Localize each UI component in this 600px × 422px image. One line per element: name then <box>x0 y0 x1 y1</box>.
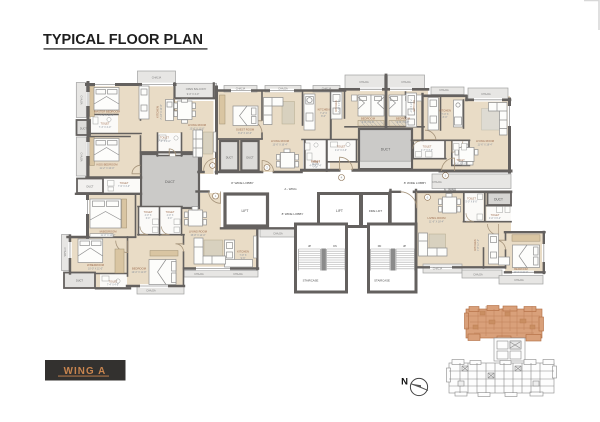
svg-text:11'-6" X 18'-4": 11'-6" X 18'-4" <box>478 144 493 147</box>
svg-text:DUCT: DUCT <box>87 186 94 189</box>
svg-text:CHAJJA: CHAJJA <box>233 273 243 276</box>
svg-text:OPEN BALCONY: OPEN BALCONY <box>186 87 207 91</box>
svg-text:WING A: WING A <box>64 366 107 377</box>
svg-text:CHAJJA: CHAJJA <box>359 81 369 84</box>
svg-text:CHAJJA: CHAJJA <box>80 95 83 104</box>
svg-text:TYPICAL FLOOR PLAN: TYPICAL FLOOR PLAN <box>43 31 203 48</box>
svg-text:LIVING ROOM: LIVING ROOM <box>189 230 208 234</box>
svg-text:11'-6" X 18'-4": 11'-6" X 18'-4" <box>429 221 444 224</box>
svg-text:8' WIDE LOBBY: 8' WIDE LOBBY <box>231 181 253 185</box>
svg-text:DUCT: DUCT <box>381 147 390 151</box>
svg-text:8' WIDE LOBBY: 8' WIDE LOBBY <box>404 181 426 185</box>
svg-text:UP: UP <box>308 245 312 248</box>
svg-text:4'-0" X: 4'-0" X <box>167 215 174 217</box>
svg-text:9'-6": 9'-6" <box>241 257 246 260</box>
svg-text:TOILET: TOILET <box>109 281 118 284</box>
svg-text:KITCHEN: KITCHEN <box>412 100 416 112</box>
svg-text:DN: DN <box>333 245 337 248</box>
svg-text:TOILET: TOILET <box>337 146 346 149</box>
svg-text:LIFT: LIFT <box>242 209 249 213</box>
svg-text:CHAJJA: CHAJJA <box>278 88 288 91</box>
svg-text:10'-0" X 10'-0": 10'-0" X 10'-0" <box>514 272 529 274</box>
svg-text:TOILET: TOILET <box>456 159 465 162</box>
svg-text:4'-0" X: 4'-0" X <box>145 215 152 217</box>
svg-text:7'-8" X 7'-0": 7'-8" X 7'-0" <box>478 239 480 251</box>
svg-text:BEDROOM: BEDROOM <box>514 267 527 271</box>
svg-text:STAIRCASE: STAIRCASE <box>374 279 390 283</box>
svg-text:DUCT: DUCT <box>226 156 234 160</box>
svg-text:4'-0" X 4'-6": 4'-0" X 4'-6" <box>335 150 347 152</box>
svg-text:7'-2" X 10'-0": 7'-2" X 10'-0" <box>100 114 114 117</box>
svg-text:DN: DN <box>378 245 382 248</box>
svg-text:DUCT: DUCT <box>246 156 254 160</box>
svg-text:10'-0" X 11'-8": 10'-0" X 11'-8" <box>132 271 147 274</box>
svg-text:KIDS BEDROOM: KIDS BEDROOM <box>97 163 119 167</box>
svg-text:4'-0" X: 4'-0" X <box>312 164 319 166</box>
svg-text:8'-0" X 10'-6": 8'-0" X 10'-6" <box>238 132 252 135</box>
svg-text:FIRE LIFT: FIRE LIFT <box>369 209 383 213</box>
svg-text:CHAJJA: CHAJJA <box>432 181 442 184</box>
svg-text:7'-4": 7'-4" <box>313 167 318 169</box>
svg-text:LIFT: LIFT <box>336 209 343 213</box>
svg-text:CHAJJA: CHAJJA <box>152 77 162 80</box>
svg-text:CHAJJA: CHAJJA <box>473 273 483 276</box>
svg-text:CHAJJA: CHAJJA <box>236 88 246 91</box>
svg-text:CHAJJA: CHAJJA <box>80 152 83 161</box>
svg-text:KITCHEN: KITCHEN <box>334 100 338 112</box>
svg-text:10'-0" X 11'-0": 10'-0" X 11'-0" <box>88 267 103 270</box>
svg-text:TOILET: TOILET <box>311 160 320 163</box>
svg-text:KITCHEN: KITCHEN <box>473 239 477 251</box>
svg-text:15'-8" X 14'-0": 15'-8" X 14'-0" <box>190 234 205 237</box>
svg-text:LIVING ROOM: LIVING ROOM <box>476 139 495 143</box>
svg-text:4'-7" X 4'-0": 4'-7" X 4'-0" <box>421 150 433 152</box>
svg-text:7'-10" X 7'-0": 7'-10" X 7'-0" <box>409 99 411 112</box>
svg-text:TOILET: TOILET <box>467 198 476 201</box>
svg-text:LIVING ROOM: LIVING ROOM <box>271 139 290 143</box>
svg-text:TOILET: TOILET <box>166 211 175 214</box>
svg-text:7'-9" X 4'-0": 7'-9" X 4'-0" <box>118 186 130 188</box>
svg-text:TOILET: TOILET <box>144 211 153 214</box>
svg-text:MASTER BEDROOM: MASTER BEDROOM <box>94 110 121 114</box>
svg-text:STAIRCASE: STAIRCASE <box>303 279 319 283</box>
svg-text:11'-2" X 10'-0": 11'-2" X 10'-0" <box>100 167 115 170</box>
svg-text:7'-10" X 7'-0": 7'-10" X 7'-0" <box>339 99 341 112</box>
svg-text:7'-4" X 4'-0": 7'-4" X 4'-0" <box>107 285 119 287</box>
svg-text:CHAJJA: CHAJJA <box>514 279 524 282</box>
svg-text:DUCT: DUCT <box>165 180 176 184</box>
svg-text:7'-10" X 10'-0": 7'-10" X 10'-0" <box>160 104 163 119</box>
svg-text:CHAJJA: CHAJJA <box>194 273 204 276</box>
svg-text:7'-4" X 4'-0": 7'-4" X 4'-0" <box>158 140 171 143</box>
svg-text:TOILET: TOILET <box>120 182 129 185</box>
svg-text:4'-0" X 7'-4": 4'-0" X 7'-4" <box>455 163 467 165</box>
svg-text:6'-0": 6'-0" <box>168 218 173 220</box>
svg-text:GUEST ROOM: GUEST ROOM <box>236 128 255 132</box>
svg-text:CHAJJA: CHAJJA <box>273 233 283 236</box>
svg-text:A - WING: A - WING <box>284 187 297 191</box>
svg-text:13'-6" X 11'-6": 13'-6" X 11'-6" <box>190 127 205 130</box>
svg-text:9'-8" X 9'-9": 9'-8" X 9'-9" <box>397 121 410 124</box>
svg-text:5'-0" X 8'-0": 5'-0" X 8'-0" <box>466 202 478 204</box>
svg-text:6'-0": 6'-0" <box>146 218 151 220</box>
svg-text:9'-8" X 9'-9": 9'-8" X 9'-9" <box>362 121 375 124</box>
svg-text:9'-0" X 4'-0": 9'-0" X 4'-0" <box>187 93 200 96</box>
svg-text:CHAJJA: CHAJJA <box>401 81 411 84</box>
svg-text:KITCHEN: KITCHEN <box>156 106 160 118</box>
svg-text:11'-0" X 10'-2": 11'-0" X 10'-2" <box>101 234 116 237</box>
svg-text:DUCT: DUCT <box>76 280 83 283</box>
svg-text:TOILET: TOILET <box>491 214 500 217</box>
svg-text:TOILET: TOILET <box>423 146 432 149</box>
svg-text:CHAJJA: CHAJJA <box>63 247 66 256</box>
svg-text:8'-0": 8'-0" <box>321 115 326 118</box>
svg-text:8'-0": 8'-0" <box>443 116 448 119</box>
svg-text:CHAJJA: CHAJJA <box>146 290 156 293</box>
svg-text:N: N <box>401 377 408 388</box>
svg-text:CHAJJA: CHAJJA <box>481 93 491 96</box>
svg-text:UP: UP <box>403 245 407 248</box>
svg-text:LIVING ROOM: LIVING ROOM <box>428 216 447 220</box>
svg-text:DUCT: DUCT <box>80 127 87 130</box>
svg-text:7'-4" X 4'-0": 7'-4" X 4'-0" <box>99 126 112 129</box>
svg-text:CHAJJA: CHAJJA <box>433 268 443 271</box>
svg-text:13'-6" X 16'-4": 13'-6" X 16'-4" <box>272 144 287 147</box>
svg-text:CHAJJA: CHAJJA <box>439 89 449 92</box>
svg-text:A - WING: A - WING <box>444 188 457 192</box>
svg-text:CHAJJA: CHAJJA <box>322 88 332 91</box>
svg-text:BEDROOM: BEDROOM <box>132 267 147 271</box>
svg-text:4'-0" X 6'-2": 4'-0" X 6'-2" <box>489 218 501 220</box>
svg-text:DUCT: DUCT <box>494 198 503 202</box>
svg-text:8' WIDE LOBBY: 8' WIDE LOBBY <box>282 212 304 216</box>
